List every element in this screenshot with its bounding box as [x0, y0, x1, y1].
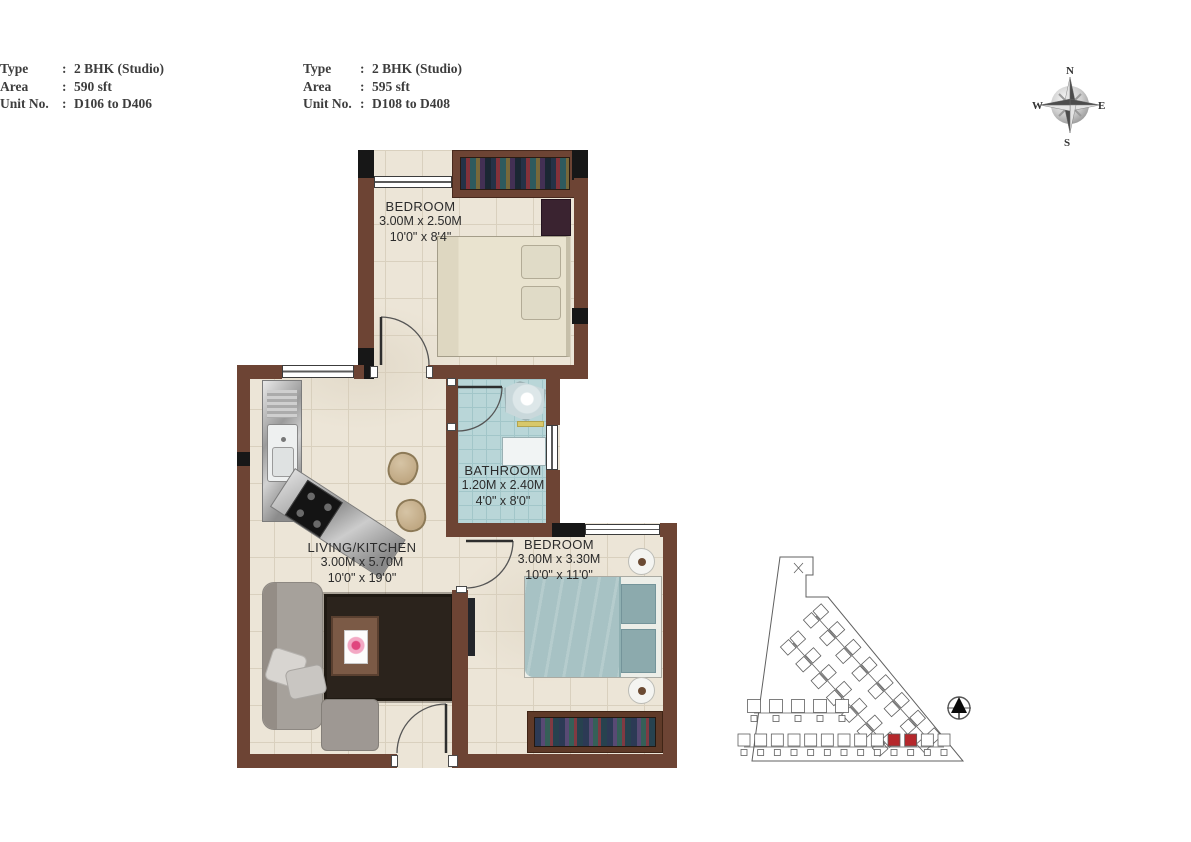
site-unit: [838, 734, 850, 746]
wardrobe-clothes: [460, 157, 570, 190]
room-label-bathroom: BATHROOM 1.20M x 2.40M 4'0" x 8'0": [445, 463, 561, 509]
door-jamb: [447, 423, 456, 431]
tv-panel: [467, 598, 475, 656]
site-unit: [751, 716, 757, 722]
site-unit: [741, 750, 747, 756]
wall-segment: [452, 590, 468, 754]
site-unit-highlighted: [888, 734, 900, 746]
site-key-plan: [728, 548, 980, 774]
pillow: [521, 286, 561, 320]
site-unit: [938, 734, 950, 746]
wall-segment: [446, 523, 552, 537]
window: [585, 524, 660, 535]
wall-segment: [452, 754, 677, 768]
wall-segment: [663, 523, 677, 768]
wall-column: [572, 308, 588, 324]
duvet: [525, 577, 621, 677]
site-unit: [836, 700, 849, 713]
site-building-rows: [738, 604, 950, 756]
door-jamb: [391, 755, 398, 767]
bed-double: [437, 236, 570, 357]
wall-segment: [237, 379, 250, 768]
site-unit: [755, 734, 767, 746]
site-unit: [817, 716, 823, 722]
site-unit: [891, 750, 897, 756]
room-dim-metric: 3.00M x 3.30M: [478, 552, 640, 568]
wardrobe-clothes: [534, 717, 656, 747]
wardrobe: [452, 150, 578, 198]
site-unit: [908, 750, 914, 756]
wall-segment: [574, 178, 588, 308]
wall-segment: [354, 365, 364, 379]
wall-column: [552, 523, 585, 537]
pillow: [521, 245, 561, 279]
door-jamb: [448, 755, 458, 767]
site-unit: [855, 734, 867, 746]
site-unit: [808, 750, 814, 756]
room-name: LIVING/KITCHEN: [283, 540, 441, 555]
site-unit: [941, 750, 947, 756]
wall-segment: [237, 754, 397, 768]
site-unit: [771, 734, 783, 746]
door-jamb: [426, 366, 433, 378]
door-jamb: [447, 378, 456, 386]
room-dim-metric: 3.00M x 2.50M: [358, 214, 483, 230]
floor-plan: BEDROOM 3.00M x 2.50M 10'0" x 8'4" BATHR…: [0, 0, 1191, 842]
wall-column: [572, 150, 588, 180]
site-unit: [858, 750, 864, 756]
north-arrow-icon: [947, 697, 971, 719]
room-label-living-kitchen: LIVING/KITCHEN 3.00M x 5.70M 10'0" x 19'…: [283, 540, 441, 586]
site-unit: [788, 734, 800, 746]
bed-double: [524, 576, 662, 678]
site-unit: [839, 716, 845, 722]
room-dim-imperial: 10'0" x 19'0": [283, 571, 441, 587]
site-unit: [814, 700, 827, 713]
wall-segment: [546, 379, 560, 425]
site-unit: [924, 750, 930, 756]
wall-segment: [237, 365, 282, 379]
wardrobe: [527, 711, 663, 753]
pillow: [621, 584, 656, 624]
door-jamb: [370, 366, 378, 378]
site-entry-mark: [794, 563, 803, 573]
site-unit: [824, 750, 830, 756]
towel-rail: [517, 421, 544, 427]
nightstand-knob: [638, 687, 646, 695]
site-unit: [758, 750, 764, 756]
wall-column: [237, 452, 250, 466]
room-name: BATHROOM: [445, 463, 561, 478]
drainboard: [267, 390, 297, 418]
wall-segment: [574, 324, 588, 365]
nightstand: [628, 677, 655, 704]
site-unit: [791, 750, 797, 756]
site-unit: [792, 700, 805, 713]
table-decor-flower: [344, 630, 368, 664]
window: [374, 176, 452, 188]
site-unit: [921, 734, 933, 746]
site-unit: [770, 700, 783, 713]
room-label-bedroom1: BEDROOM 3.00M x 2.50M 10'0" x 8'4": [358, 199, 483, 245]
site-unit-highlighted: [905, 734, 917, 746]
site-unit: [748, 700, 761, 713]
pillow: [621, 629, 656, 673]
site-unit: [774, 750, 780, 756]
room-dim-metric: 3.00M x 5.70M: [283, 555, 441, 571]
ottoman: [321, 699, 379, 751]
wall-segment: [446, 365, 458, 537]
site-unit: [841, 750, 847, 756]
site-unit: [821, 734, 833, 746]
window: [282, 365, 354, 378]
site-unit: [738, 734, 750, 746]
room-dim-imperial: 10'0" x 11'0": [478, 568, 640, 584]
site-unit: [773, 716, 779, 722]
room-name: BEDROOM: [478, 537, 640, 552]
room-label-bedroom2: BEDROOM 3.00M x 3.30M 10'0" x 11'0": [478, 537, 640, 583]
floor-plan-page: Type:2 BHK (Studio) Area:590 sft Unit No…: [0, 0, 1191, 842]
washbasin-counter: [502, 437, 546, 466]
faucet: [281, 437, 286, 442]
room-name: BEDROOM: [358, 199, 483, 214]
dresser: [541, 199, 571, 236]
door-jamb: [456, 586, 467, 593]
wall-column: [358, 150, 374, 180]
site-unit: [871, 734, 883, 746]
room-dim-metric: 1.20M x 2.40M: [445, 478, 561, 494]
room-dim-imperial: 10'0" x 8'4": [358, 230, 483, 246]
site-unit: [874, 750, 880, 756]
room-dim-imperial: 4'0" x 8'0": [445, 494, 561, 510]
coffee-table: [331, 616, 379, 676]
site-unit: [795, 716, 801, 722]
site-unit: [805, 734, 817, 746]
